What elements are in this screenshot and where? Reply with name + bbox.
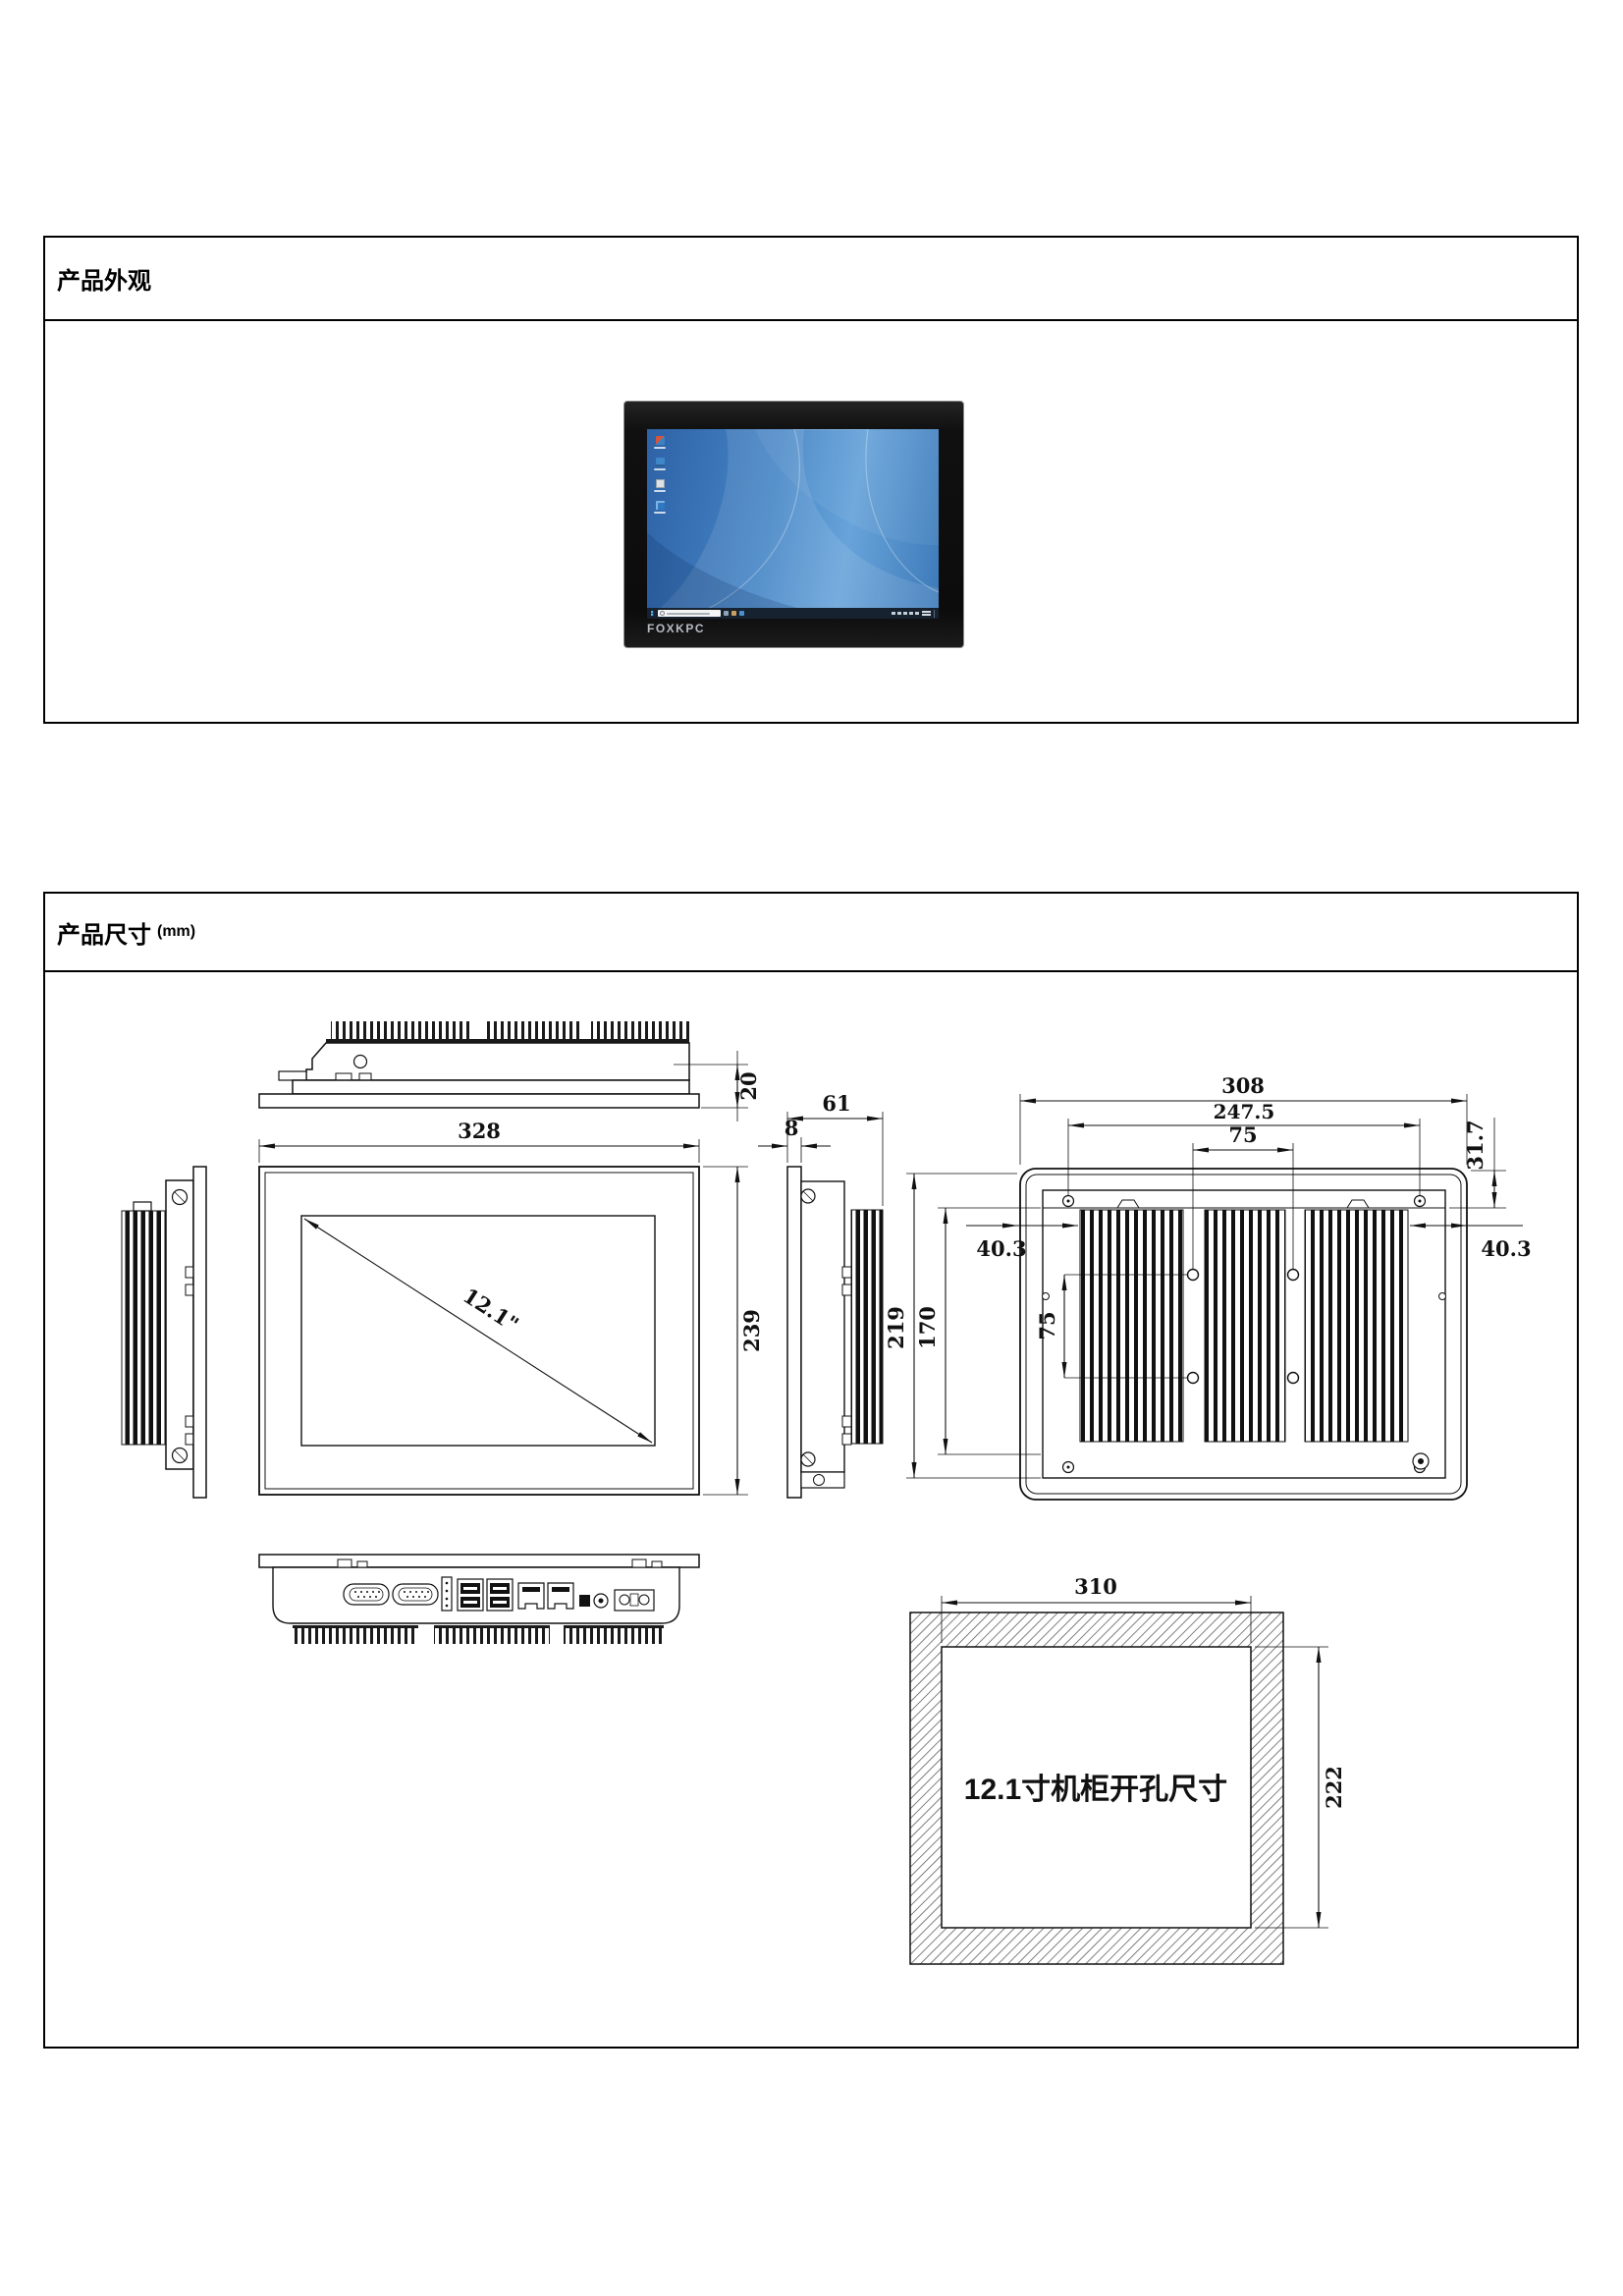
section-product-appearance: 产品外观 [43,236,1579,724]
dim-depth-61: 61 [822,1091,850,1116]
tray-icon [897,612,901,615]
show-desktop-edge [934,610,937,618]
dim-depth-20: 20 [736,1071,761,1100]
tray-icon [909,612,913,615]
clock [922,611,931,617]
cutout-label: 12.1寸机柜开孔尺寸 [964,1774,1227,1806]
panel-pc-photo: FOXKPC [623,401,964,648]
dimension-drawings: 20 12.1" [45,972,1577,2047]
dim-panel-8: 8 [784,1116,799,1140]
document-icon [656,479,665,488]
task-view-icon [724,611,729,616]
drawing-bottom-view [259,1555,699,1644]
dim-top-offset-31-7: 31.7 [1463,1120,1488,1170]
dim-mount-span-247-5: 247.5 [1214,1100,1275,1123]
taskbar [647,608,939,619]
datasheet-page: 产品外观 [0,0,1623,2296]
taskbar-search [658,610,721,617]
switch-icon [579,1595,590,1607]
dim-width-328: 328 [458,1119,501,1143]
drawing-front-view: 12.1" 328 239 [259,1119,764,1495]
drawing-left-side-view [122,1167,206,1498]
dim-body-height-170: 170 [915,1306,940,1349]
desktop-icon [653,479,667,492]
dim-height-219: 219 [884,1306,908,1349]
desktop-icon [653,501,667,514]
section-appearance-title: 产品外观 [57,261,151,296]
tray-icon [903,612,907,615]
start-button-icon [651,611,656,616]
search-icon [660,611,665,616]
section-product-dimensions: 产品尺寸 (mm) [43,892,1579,2049]
dim-right-offset-40-3: 40.3 [1481,1236,1531,1261]
tray-icon [915,612,919,615]
display-icon [656,501,665,510]
desktop-icons [653,436,669,522]
drawing-right-side-view: 61 8 [758,1091,883,1498]
desktop-wallpaper [647,429,939,619]
file-explorer-icon [731,611,736,616]
dim-left-offset-40-3: 40.3 [976,1236,1026,1261]
drawing-cabinet-cutout: 310 222 12.1寸机柜开孔尺寸 [910,1574,1346,1964]
dim-cutout-height-222: 222 [1322,1766,1346,1809]
drawing-top-view: 20 [259,1021,761,1121]
dim-height-239: 239 [739,1309,764,1352]
search-placeholder-smudge [667,613,710,615]
pinned-app-icon [739,611,744,616]
brand-logo: FOXKPC [647,622,705,635]
section-appearance-header: 产品外观 [45,238,1577,321]
dim-vesa-h-75: 75 [1228,1122,1257,1147]
desktop-icon [653,458,667,470]
app-icon [656,436,665,445]
section-dimensions-title: 产品尺寸 [57,915,151,950]
monitor-screen [647,429,939,619]
section-dimensions-header: 产品尺寸 (mm) [45,894,1577,972]
drawing-rear-view: 75 308 247.5 75 31.7 40.3 [884,1073,1532,1500]
dim-cutout-width-310: 310 [1074,1574,1117,1599]
tray-icon [892,612,895,615]
desktop-icon [653,436,667,449]
folder-icon [656,458,665,466]
terminal-block-icon [615,1590,654,1611]
dim-width-308: 308 [1221,1073,1265,1098]
dim-vesa-v-75: 75 [1035,1311,1059,1339]
section-dimensions-unit: (mm) [157,923,195,941]
system-tray [890,610,937,618]
